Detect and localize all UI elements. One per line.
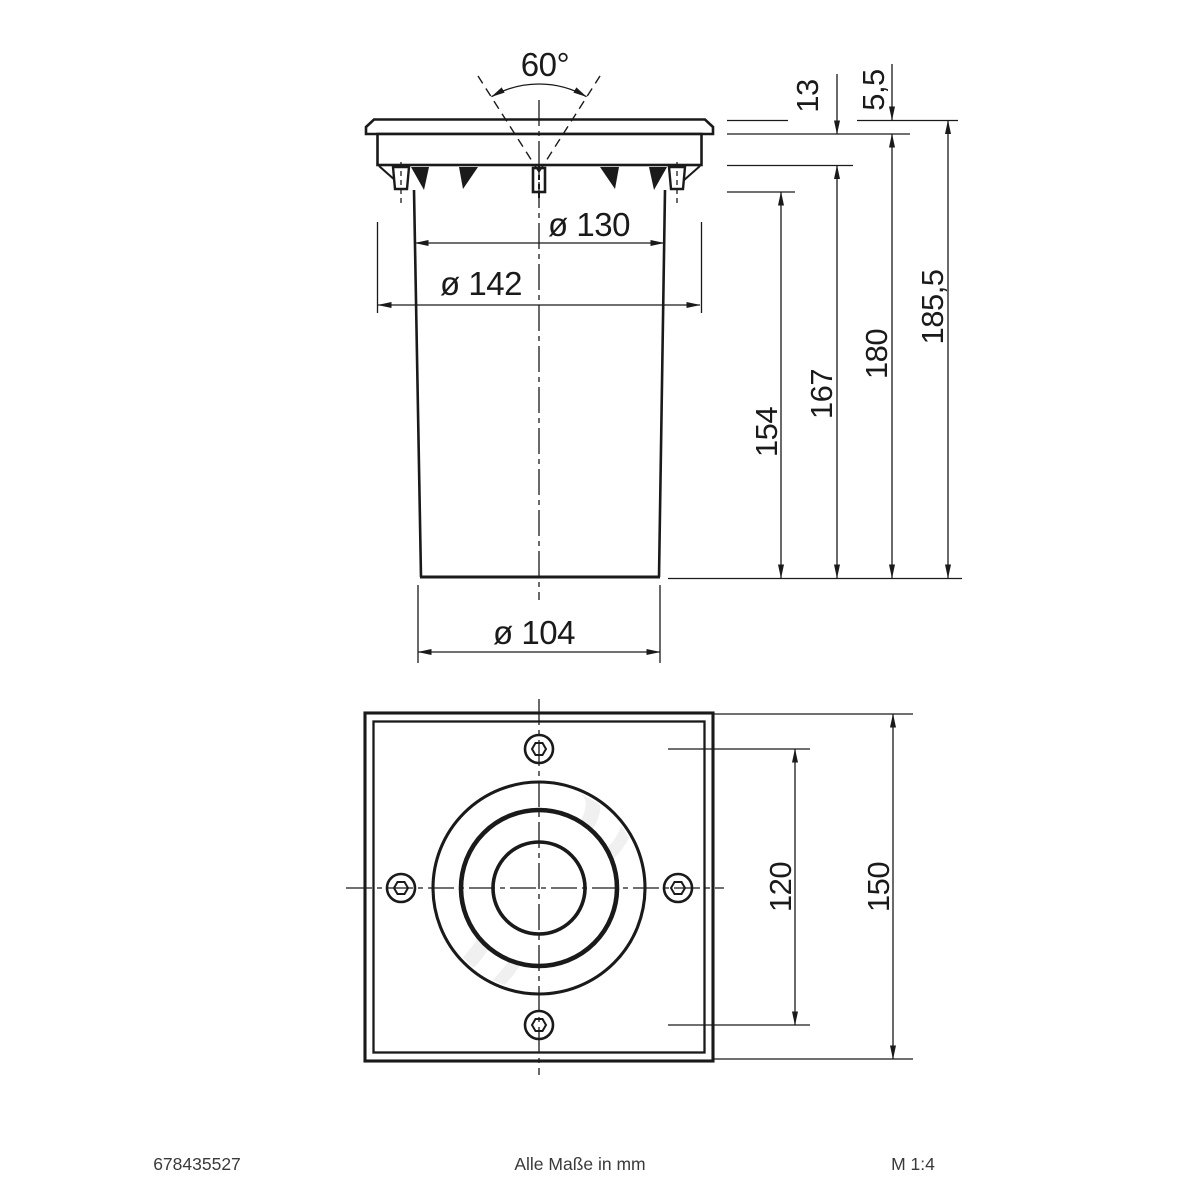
dim-label-cover-height: 5,5: [856, 69, 891, 111]
technical-drawing-page: 60° ø 130 ø 142 ø 104: [0, 0, 1200, 1200]
dim-label-screw-spacing: 120: [763, 862, 798, 912]
scale-note: M 1:4: [891, 1154, 935, 1174]
clip-tab-right: [669, 167, 685, 189]
dim-label-height-with-clips: 167: [804, 369, 839, 419]
dim-label-body-diameter: ø 104: [493, 614, 575, 651]
dim-label-plate-size: 150: [861, 862, 896, 912]
dim-label-collar-height: 13: [790, 79, 825, 112]
dim-cover-height: 5,5: [856, 64, 892, 120]
luminaire-dimension-drawing: 60° ø 130 ø 142 ø 104: [0, 0, 1200, 1200]
dim-label-height-below-cover: 180: [859, 329, 894, 379]
clip-tab-left: [393, 167, 409, 189]
dim-label-body-height: 154: [749, 407, 784, 457]
units-note: Alle Maße in mm: [514, 1154, 645, 1174]
dim-label-total-height: 185,5: [915, 269, 950, 344]
dim-label-beam-angle: 60°: [521, 46, 569, 83]
article-number: 678435527: [153, 1154, 241, 1174]
dim-label-flange-diameter: ø 142: [440, 265, 522, 302]
dim-label-cutout-diameter: ø 130: [548, 206, 630, 243]
